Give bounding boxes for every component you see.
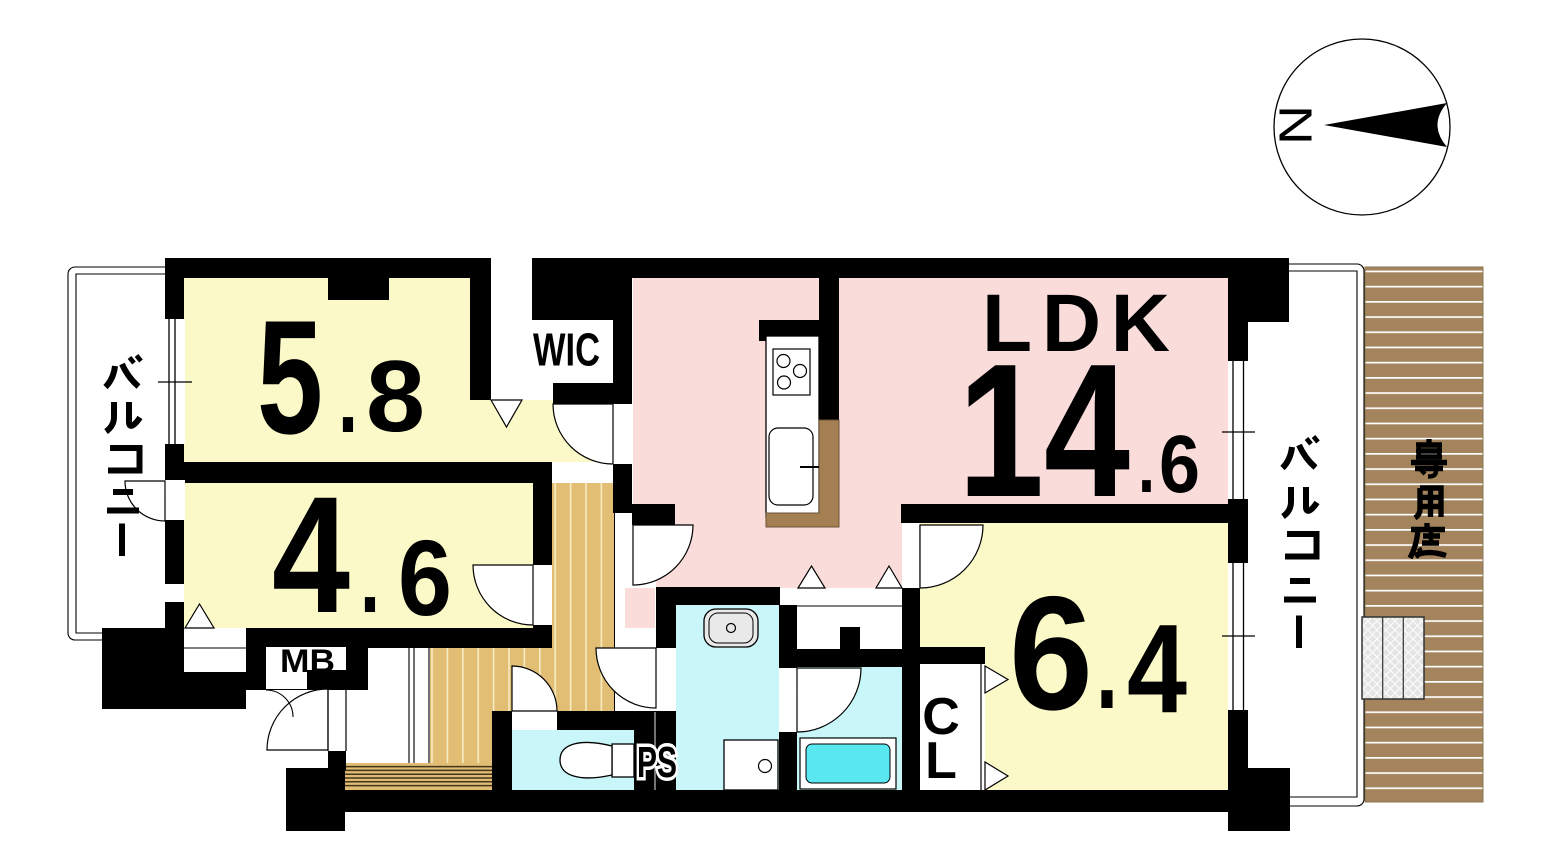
svg-text:4: 4 xyxy=(272,463,350,648)
svg-text:6: 6 xyxy=(1159,419,1200,510)
svg-text:8: 8 xyxy=(366,341,425,453)
svg-text:MB: MB xyxy=(280,643,335,679)
svg-text:14: 14 xyxy=(958,325,1130,537)
svg-text:L: L xyxy=(925,732,957,790)
svg-text:.: . xyxy=(1138,420,1155,509)
svg-text:WIC: WIC xyxy=(533,324,600,376)
svg-text:6: 6 xyxy=(1009,563,1093,744)
svg-text:.: . xyxy=(360,522,380,634)
svg-text:4: 4 xyxy=(1127,598,1187,739)
svg-text:.: . xyxy=(1096,600,1118,734)
svg-text:6: 6 xyxy=(398,517,452,638)
svg-text:PS: PS xyxy=(637,738,677,787)
svg-text:N: N xyxy=(1270,105,1322,145)
svg-text:.: . xyxy=(338,342,358,454)
svg-text:5: 5 xyxy=(257,287,323,468)
